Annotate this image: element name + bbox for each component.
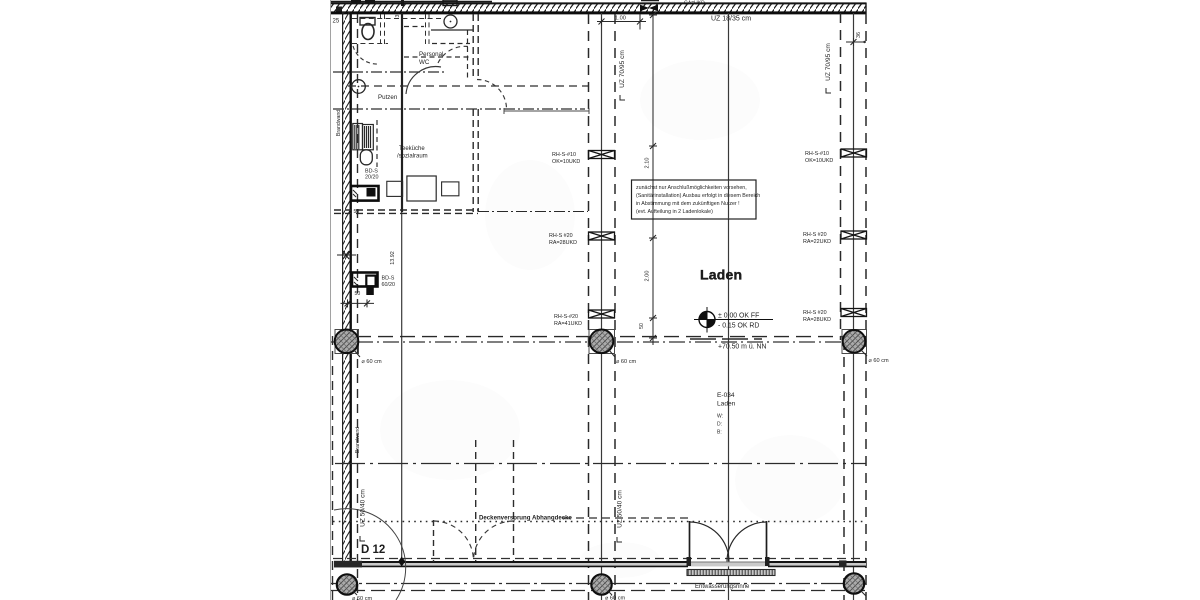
svg-text:RA=28UKD: RA=28UKD <box>803 317 831 323</box>
svg-text:60/20: 60/20 <box>382 282 396 288</box>
svg-text:RH-S #20: RH-S #20 <box>803 232 827 238</box>
svg-text:30: 30 <box>395 12 401 18</box>
svg-text:⌀ 60 cm: ⌀ 60 cm <box>869 358 889 364</box>
svg-text:1.00: 1.00 <box>615 16 626 22</box>
svg-text:UZ 70/95 cm: UZ 70/95 cm <box>825 43 832 81</box>
svg-text:13.92: 13.92 <box>390 251 396 265</box>
svg-text:RH-S #20: RH-S #20 <box>803 310 827 316</box>
svg-text:25: 25 <box>333 19 340 25</box>
svg-text:WC: WC <box>419 59 430 66</box>
svg-text:± 0.00 OK FF: ± 0.00 OK FF <box>718 313 759 320</box>
svg-text:UZ 70/95 cm: UZ 70/95 cm <box>619 50 626 88</box>
svg-text:OK=10UKD: OK=10UKD <box>552 159 580 165</box>
svg-text:(Sanitärinstallation) Ausbau e: (Sanitärinstallation) Ausbau erfolgt in … <box>636 193 760 199</box>
svg-text:⌀ 60 cm: ⌀ 60 cm <box>605 596 625 600</box>
svg-text:36: 36 <box>856 32 862 38</box>
svg-text:/sozialraum: /sozialraum <box>397 154 428 160</box>
svg-text:Entwässerungsrinne: Entwässerungsrinne <box>695 584 750 590</box>
svg-text:50: 50 <box>355 291 361 297</box>
svg-text:50: 50 <box>639 323 645 329</box>
svg-text:2.10: 2.10 <box>645 158 651 169</box>
svg-text:in Abstimmung mit dem zukünfti: in Abstimmung mit dem zukünftigen Nutzer… <box>636 201 740 207</box>
svg-text:Personal: Personal <box>419 51 443 58</box>
svg-text:Putzen: Putzen <box>378 94 398 101</box>
svg-text:Laden: Laden <box>717 401 736 408</box>
svg-text:D 12: D 12 <box>361 544 385 556</box>
svg-text:(evt. Aufteilung in 2 Ladenlok: (evt. Aufteilung in 2 Ladenlokale) <box>636 209 713 215</box>
svg-text:Teeküche: Teeküche <box>399 146 425 152</box>
svg-text:+70.50 m ü. NN: +70.50 m ü. NN <box>718 344 766 351</box>
svg-text:- 0.15 OK RD: - 0.15 OK RD <box>718 323 759 330</box>
svg-text:⌀ 60 cm: ⌀ 60 cm <box>352 596 372 600</box>
svg-text:Brandwand: Brandwand <box>336 110 342 136</box>
svg-text:RH-S #20: RH-S #20 <box>549 233 573 239</box>
svg-text:2.00: 2.00 <box>645 271 651 282</box>
svg-text:50: 50 <box>354 209 360 215</box>
svg-text:RH-S-#10: RH-S-#10 <box>805 151 829 157</box>
svg-text:RH-S-#20: RH-S-#20 <box>554 314 578 320</box>
svg-text:UZ 50/40 cm: UZ 50/40 cm <box>617 490 624 528</box>
svg-text:Laden: Laden <box>700 267 742 283</box>
svg-text:⌀ 60 cm: ⌀ 60 cm <box>616 359 636 365</box>
svg-text:B:: B: <box>717 430 722 436</box>
svg-text:Deckenversprung Abhangdecke: Deckenversprung Abhangdecke <box>479 515 573 522</box>
svg-text:E-034: E-034 <box>717 392 735 399</box>
svg-text:UZ 18/35 cm: UZ 18/35 cm <box>711 16 751 23</box>
svg-text:D:: D: <box>717 422 722 428</box>
svg-text:20/20: 20/20 <box>365 175 379 181</box>
svg-text:UZ 50/40 cm: UZ 50/40 cm <box>360 489 367 527</box>
svg-text:W:: W: <box>717 414 723 420</box>
svg-text:BD-S: BD-S <box>382 276 395 282</box>
svg-text:OK=10UKD: OK=10UKD <box>805 158 833 164</box>
svg-text:RA=22UKD: RA=22UKD <box>803 239 831 245</box>
svg-text:RA=28UKD: RA=28UKD <box>549 240 577 246</box>
svg-text:RA=41UKD: RA=41UKD <box>554 321 582 327</box>
svg-text:RH-S-#10: RH-S-#10 <box>552 152 576 158</box>
svg-text:⌀ 60 cm: ⌀ 60 cm <box>362 359 382 365</box>
